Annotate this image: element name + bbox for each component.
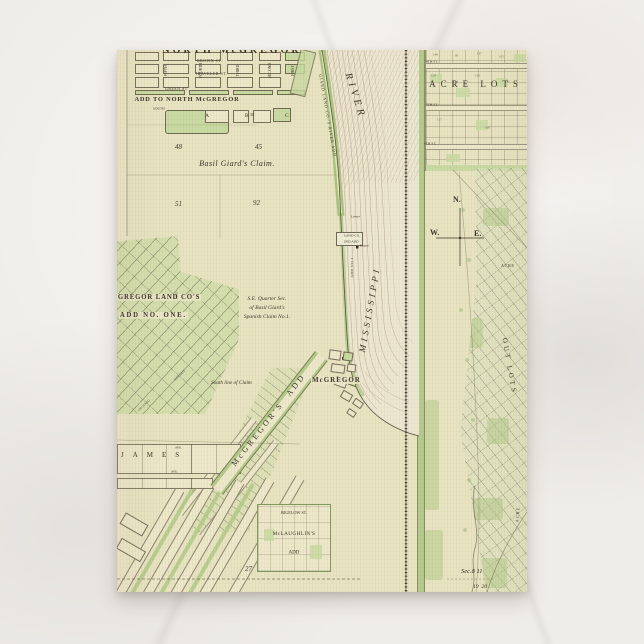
lot-number: 105 bbox=[499, 55, 504, 58]
label-compass-n: N. bbox=[453, 196, 461, 204]
lot-number: 137 bbox=[477, 52, 482, 55]
label-acre-lots: ACRE LOTS bbox=[427, 80, 525, 89]
map-block bbox=[330, 363, 345, 374]
label-third-st: THIRD bbox=[236, 60, 240, 82]
label-mclaughlins-add: ADD bbox=[280, 550, 308, 555]
label-4th-st: 4TH ST. bbox=[426, 60, 438, 64]
lot-number: 129 bbox=[431, 74, 436, 77]
lot-number: 134 bbox=[453, 80, 458, 83]
label-se-quarter-3: Spanish Claim No.1. bbox=[235, 314, 299, 320]
label-45: 45 bbox=[255, 144, 262, 151]
depot-building bbox=[356, 246, 359, 249]
label-mcgregor-town: McGREGOR bbox=[311, 377, 362, 384]
lot-number: 95 bbox=[455, 54, 458, 57]
label-james-st: JAMES bbox=[121, 452, 188, 459]
label-48: 48 bbox=[175, 144, 182, 151]
label-ave-1: AVE. bbox=[175, 446, 182, 449]
plat-map: LAND CO. 2ND ADD NORTH McGREGOR BROWN ST… bbox=[117, 50, 527, 592]
label-green-st: GREEN ST. bbox=[165, 87, 189, 91]
map-block bbox=[346, 408, 357, 418]
land-co-2nd-add-box: LAND CO. 2ND ADD bbox=[336, 232, 363, 246]
label-bigelow-st: BIGELOW ST. bbox=[273, 511, 315, 515]
label-compass-e: E. bbox=[474, 230, 481, 238]
lot-number: 108 bbox=[485, 126, 490, 129]
label-first-st: FIRST bbox=[291, 60, 295, 82]
label-depot: Depot bbox=[360, 244, 369, 248]
label-sec-8: Sec.8 11 bbox=[461, 569, 483, 576]
label-sec-nums: 19 20 bbox=[473, 584, 487, 590]
label-land-co: LAND CO. bbox=[344, 234, 358, 238]
map-block bbox=[342, 351, 353, 361]
label-compass-w: W. bbox=[430, 229, 439, 237]
map-block bbox=[340, 390, 354, 402]
label-south-st: SOUTH bbox=[153, 107, 165, 111]
tree-specks bbox=[459, 208, 475, 532]
lot-number: 148 bbox=[433, 53, 438, 56]
label-second-st: SECOND bbox=[268, 60, 272, 82]
lot-number: 117 bbox=[437, 118, 442, 121]
river-and-linework bbox=[117, 50, 527, 592]
lot-number: 141 bbox=[505, 80, 510, 83]
map-block bbox=[328, 349, 341, 361]
label-basil-giards-claim: Basil Giard's Claim. bbox=[177, 160, 297, 168]
label-2nd-add: 2ND ADD bbox=[344, 240, 358, 244]
mcgregor-town-blocks bbox=[327, 348, 373, 424]
label-51: 51 bbox=[175, 201, 182, 208]
label-north-mcgregor: NORTH McGREGOR bbox=[157, 50, 307, 56]
label-27: 27 bbox=[245, 566, 252, 573]
label-36: 36 bbox=[250, 113, 254, 117]
label-acre-mid: ACRE bbox=[501, 264, 515, 268]
label-fourth-st: FOURTH bbox=[199, 60, 203, 82]
label-6th-st: 6TH ST. bbox=[424, 142, 436, 146]
label-se-quarter-2: of Basil Giard's bbox=[235, 305, 299, 311]
label-add-no-one: ADD NO. ONE. bbox=[119, 312, 188, 319]
label-add-no1: ADD NO.1 bbox=[350, 258, 354, 278]
lot-number: 120 bbox=[475, 74, 480, 77]
label-5th-st: 5TH ST. bbox=[426, 103, 438, 107]
postcard: LAND CO. 2ND ADD NORTH McGREGOR BROWN ST… bbox=[117, 50, 527, 592]
label-south-line-of-claim: South line of Claim bbox=[211, 380, 252, 385]
label-92: 92 bbox=[253, 200, 260, 207]
label-gregor-land-cos: GREGOR LAND CO'S bbox=[117, 294, 201, 301]
label-ave-2: AVE. bbox=[171, 470, 178, 473]
label-mclaughlins: McLAUGHLIN'S bbox=[266, 531, 323, 536]
label-pine-st: PINE bbox=[175, 292, 178, 299]
label-lower: Lower bbox=[351, 215, 360, 219]
label-fifth-st: FIFTH bbox=[164, 60, 168, 82]
map-block bbox=[352, 398, 364, 409]
label-se-quarter-1: S.E. Quarter Sec. bbox=[235, 296, 299, 302]
label-add-to-north-mcgregor: ADD TO NORTH McGREGOR bbox=[131, 96, 243, 102]
